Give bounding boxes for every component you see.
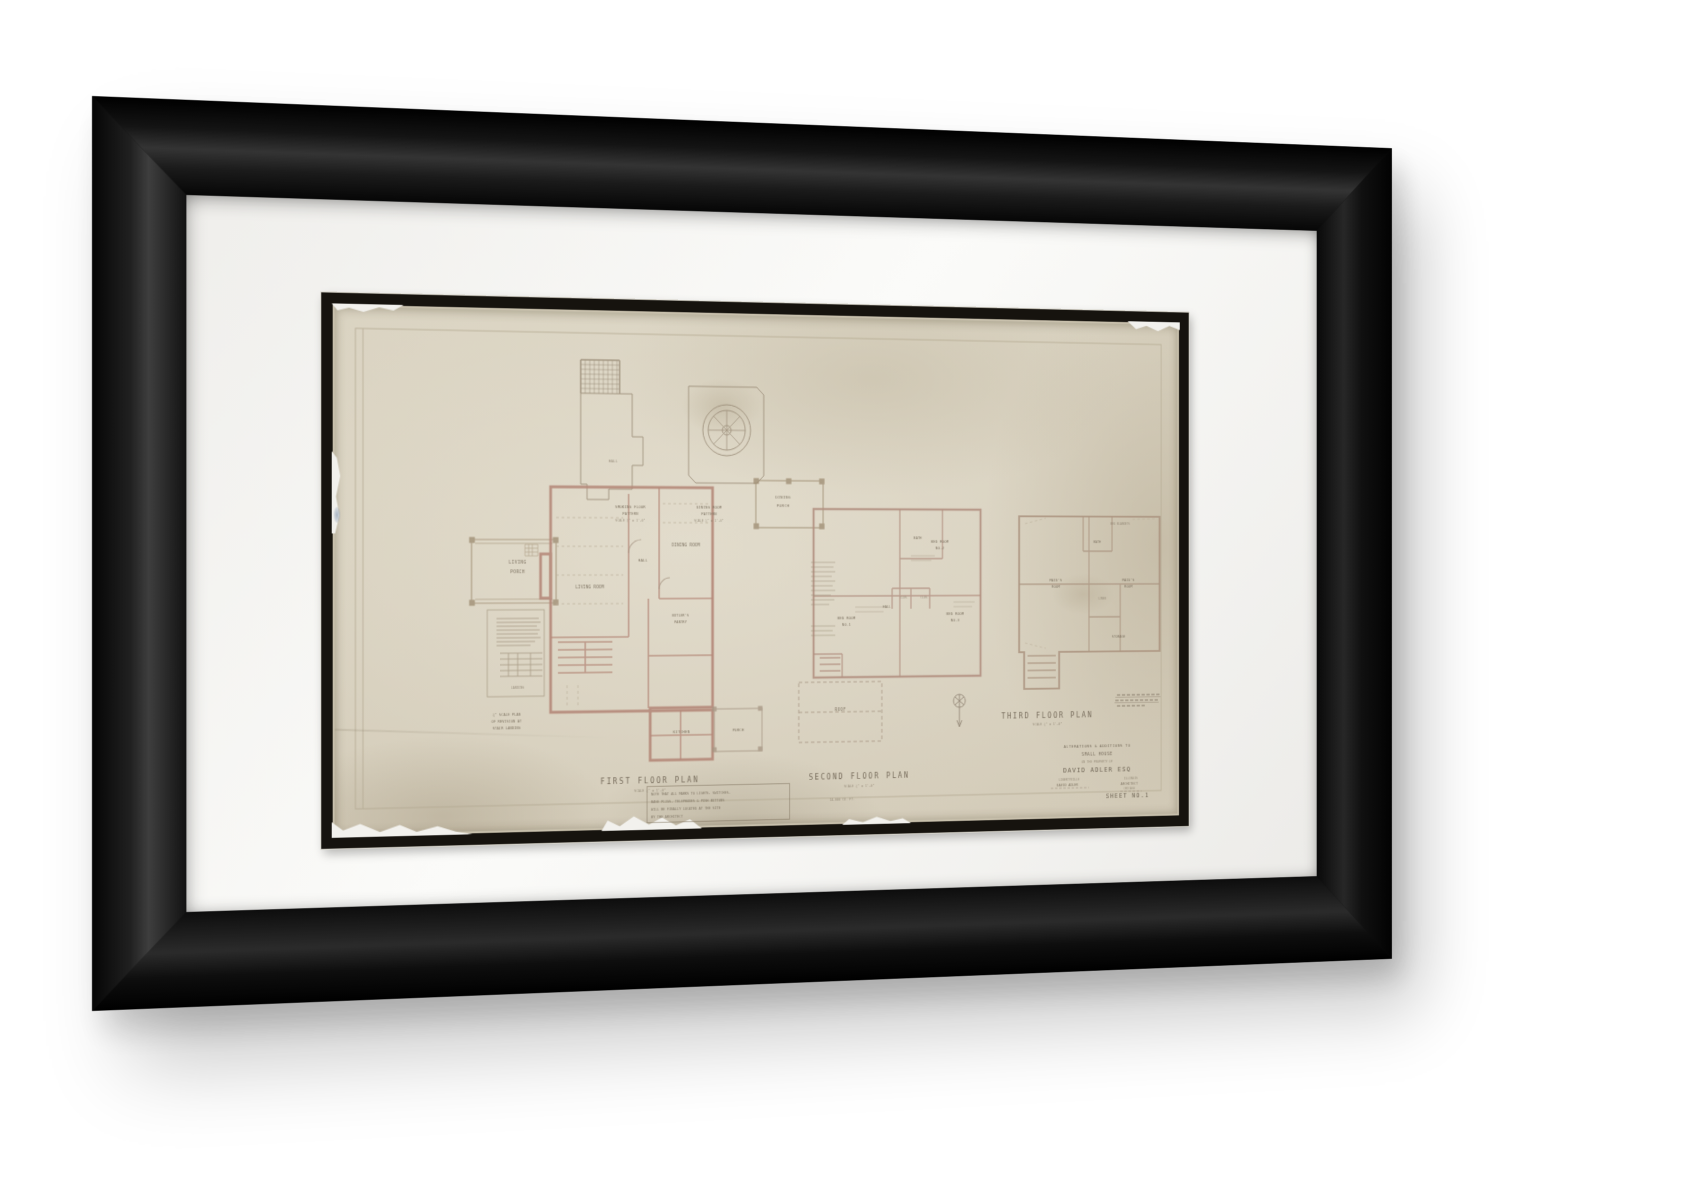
title-block-city: CHICAGO	[1124, 787, 1135, 790]
room-label-dining-room: DINING ROOM	[672, 543, 700, 547]
title-block-place-left: LIBERTYVILLE	[1059, 778, 1080, 781]
general-note-box: NOTE THAT ALL MARKS TO LIGHTS, SWITCHES,…	[647, 783, 790, 823]
third-floor-plan-scale: SCALE ¼" = 1'-0"	[1033, 723, 1063, 727]
third-floor-note: BED BLANKETS	[1111, 523, 1130, 526]
room-label-bedroom2-a: BED ROOM	[931, 540, 949, 544]
room-label-kitchen: KITCHEN	[673, 730, 690, 734]
room-label-butlers-pantry-2: PANTRY	[674, 621, 687, 624]
sheet-edge: HALL SMOKING FLOOR PATTERN SCALE ½" = 1'…	[333, 304, 1179, 837]
room-label-hall-2f: HALL	[883, 605, 891, 608]
frame-rail-right	[1317, 145, 1392, 962]
photo-background: HALL SMOKING FLOOR PATTERN SCALE ½" = 1'…	[0, 0, 1704, 1204]
room-label-bath-3f: BATH	[1094, 541, 1101, 544]
room-label-butlers-pantry-1: BUTLER'S	[672, 614, 689, 618]
room-label-bedroom1-b: NO.1	[842, 623, 851, 627]
note-line-2: BASE PLUGS, TELEPHONES & PUSH BUTTONS	[651, 799, 724, 804]
title-block-line-3: ON THE PROPERTY OF	[1082, 760, 1113, 764]
drawing-sheet: HALL SMOKING FLOOR PATTERN SCALE ½" = 1'…	[335, 306, 1178, 835]
room-label-porch: PORCH	[732, 728, 744, 732]
stair-detail-caption-2: OF REVISION AT	[491, 720, 521, 724]
title-block-line-2: SMALL HOUSE	[1082, 752, 1113, 757]
cubage-note: 14,000 CU. FT.	[830, 798, 855, 802]
title-block-architect-name: DAVID ADLER	[1057, 783, 1078, 787]
frame-rail-left	[92, 96, 186, 1011]
note-line-3: WILL BE FINALLY LOCATED AT THE SITE	[651, 806, 720, 811]
dining-pattern-subtitle: PATTERN	[701, 512, 716, 516]
room-label-bath-2f: BATH	[914, 537, 922, 540]
stair-detail-landing-label: LANDING	[511, 686, 524, 689]
stair-detail-caption-3: STAIR LANDING	[493, 726, 521, 730]
ink-smudge	[334, 507, 341, 523]
dining-pattern-scale: SCALE ½" = 1'-0"	[694, 519, 724, 522]
note-line-4: BY THE ARCHITECT	[651, 815, 683, 819]
room-label-storage: STORAGE	[1112, 635, 1125, 638]
room-label-living-porch-1: LIVING	[509, 560, 527, 564]
room-label-dining-porch-1: DINING	[775, 496, 790, 500]
plan-linework	[335, 306, 1178, 835]
sheet-number: SHEET NO.1	[1106, 793, 1149, 800]
room-label-hall: HALL	[638, 559, 647, 563]
room-label-maids-room-2b: ROOM	[1124, 585, 1132, 588]
smoking-pattern-subtitle: PATTERN	[623, 512, 639, 516]
dining-pattern-title: DINING ROOM	[696, 506, 721, 510]
stair-detail-caption-1: ¼" SCALE PLAN	[493, 713, 521, 717]
room-label-bedroom1-a: BED ROOM	[837, 616, 855, 620]
room-label-roof: ROOF	[835, 708, 846, 712]
smoking-pattern-title: SMOKING FLOOR	[615, 505, 646, 509]
note-line-1: NOTE THAT ALL MARKS TO LIGHTS, SWITCHES,	[651, 791, 730, 796]
room-label-bedroom3-b: NO.3	[951, 619, 960, 623]
smoking-pattern-scale: SCALE ½" = 1'-0"	[615, 519, 645, 522]
framed-print: HALL SMOKING FLOOR PATTERN SCALE ½" = 1'…	[92, 96, 1392, 1011]
room-label-living-porch-2: PORCH	[510, 570, 525, 574]
room-label-dining-porch-2: PORCH	[777, 504, 790, 508]
room-label-bedroom3-a: BED ROOM	[946, 612, 964, 616]
mat-fillet: HALL SMOKING FLOOR PATTERN SCALE ½" = 1'…	[321, 292, 1188, 849]
room-label-living-room: LIVING ROOM	[575, 585, 604, 589]
room-label-closet-1: CLOS.	[900, 596, 908, 599]
third-floor-plan-title: THIRD FLOOR PLAN	[1001, 712, 1093, 721]
title-block-architect-title: ARCHITECT	[1121, 782, 1138, 786]
room-label-maids-room-1b: ROOM	[1052, 585, 1060, 589]
room-label-maids-room-1a: MAID'S	[1050, 579, 1062, 583]
room-label-hall-detail: HALL	[609, 460, 618, 464]
title-block-place-right: ILLINOIS	[1124, 777, 1138, 780]
room-label-linen: LINEN	[1098, 597, 1106, 600]
room-label-closet-2: CLOS.	[920, 596, 928, 599]
room-label-bedroom2-b: NO.2	[935, 547, 944, 551]
second-floor-plan-scale: SCALE ¼" = 1'-0"	[844, 784, 875, 788]
room-label-maids-room-2a: MAID'S	[1122, 579, 1134, 582]
mat-board: HALL SMOKING FLOOR PATTERN SCALE ½" = 1'…	[186, 195, 1316, 912]
